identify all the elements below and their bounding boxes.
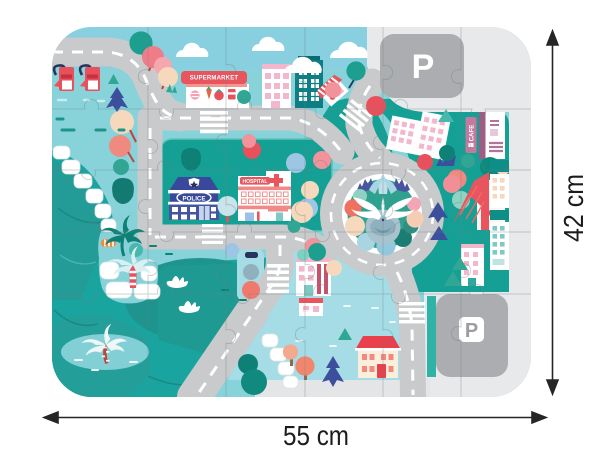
svg-text:P: P — [465, 320, 478, 342]
svg-text:CAFE: CAFE — [468, 125, 475, 142]
svg-text:55 cm: 55 cm — [283, 420, 349, 451]
svg-text:HOSPITAL: HOSPITAL — [243, 179, 268, 185]
svg-text:P: P — [412, 48, 435, 86]
svg-text:42 cm: 42 cm — [558, 174, 589, 242]
svg-text:POLICE: POLICE — [182, 196, 205, 203]
